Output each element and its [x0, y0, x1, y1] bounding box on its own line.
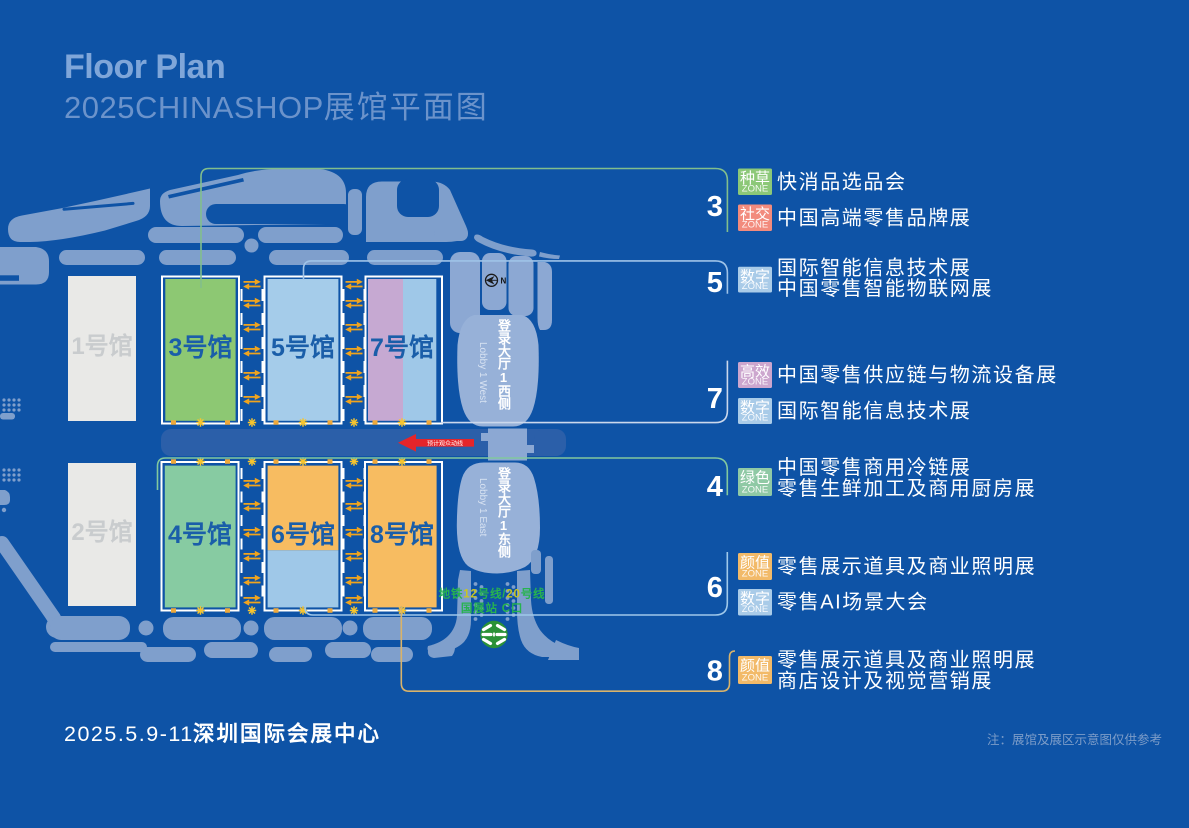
svg-text:N: N: [501, 277, 507, 286]
svg-text:6号馆: 6号馆: [271, 520, 335, 549]
svg-text:8: 8: [707, 656, 723, 688]
svg-text:5: 5: [707, 267, 723, 299]
svg-text:登录大厅1东侧: 登录大厅1东侧: [496, 466, 512, 559]
svg-text:ZONE: ZONE: [742, 485, 768, 496]
svg-text:中国零售供应链与物流设备展: 中国零售供应链与物流设备展: [777, 364, 1058, 387]
svg-text:Lobby 1 West: Lobby 1 West: [477, 342, 488, 403]
svg-text:ZONE: ZONE: [742, 220, 768, 231]
svg-text:7: 7: [707, 383, 723, 415]
svg-text:零售展示道具及商业照明展: 零售展示道具及商业照明展: [777, 649, 1036, 672]
svg-text:Lobby 1 East: Lobby 1 East: [477, 478, 488, 537]
svg-text:1号馆: 1号馆: [71, 332, 132, 360]
svg-text:中国零售商用冷链展: 中国零售商用冷链展: [777, 456, 971, 479]
svg-text:ZONE: ZONE: [742, 281, 768, 292]
svg-text:零售展示道具及商业照明展: 零售展示道具及商业照明展: [777, 555, 1036, 578]
svg-text:快消品选品会: 快消品选品会: [777, 171, 907, 194]
svg-text:Floor Plan: Floor Plan: [64, 48, 225, 86]
svg-text:商店设计及视觉营销展: 商店设计及视觉营销展: [777, 670, 993, 693]
svg-text:中国高端零售品牌展: 中国高端零售品牌展: [777, 207, 971, 230]
svg-text:ZONE: ZONE: [742, 604, 768, 615]
svg-text:地铁12号线/20号线: 地铁12号线/20号线: [439, 587, 546, 601]
svg-text:2025CHINASHOP展馆平面图: 2025CHINASHOP展馆平面图: [64, 90, 489, 125]
svg-text:零售AI场景大会: 零售AI场景大会: [777, 591, 929, 614]
svg-text:ZONE: ZONE: [742, 184, 768, 195]
svg-text:2025.5.9-11: 2025.5.9-11: [64, 722, 194, 746]
svg-text:ZONE: ZONE: [742, 673, 768, 684]
svg-text:5号馆: 5号馆: [271, 333, 335, 362]
svg-text:2号馆: 2号馆: [71, 518, 132, 546]
svg-text:3号馆: 3号馆: [169, 333, 233, 362]
svg-text:中国零售智能物联网展: 中国零售智能物联网展: [777, 277, 993, 300]
svg-text:国展站 C口: 国展站 C口: [461, 601, 523, 615]
svg-text:登录大厅1西侧: 登录大厅1西侧: [496, 318, 512, 411]
svg-text:预计观众动线: 预计观众动线: [427, 439, 463, 447]
svg-text:ZONE: ZONE: [742, 569, 768, 580]
svg-text:8号馆: 8号馆: [370, 520, 434, 549]
svg-text:ZONE: ZONE: [742, 377, 768, 388]
svg-text:深圳国际会展中心: 深圳国际会展中心: [193, 721, 381, 746]
svg-text:7号馆: 7号馆: [370, 333, 434, 362]
svg-text:3: 3: [707, 191, 723, 223]
svg-text:国际智能信息技术展: 国际智能信息技术展: [777, 257, 971, 280]
svg-text:4号馆: 4号馆: [168, 520, 232, 549]
svg-text:零售生鲜加工及商用厨房展: 零售生鲜加工及商用厨房展: [777, 477, 1036, 500]
svg-text:4: 4: [707, 471, 723, 503]
svg-text:注：展馆及展区示意图仅供参考: 注：展馆及展区示意图仅供参考: [987, 732, 1162, 747]
svg-text:ZONE: ZONE: [742, 413, 768, 424]
svg-text:6: 6: [707, 572, 723, 604]
svg-text:国际智能信息技术展: 国际智能信息技术展: [777, 400, 971, 423]
